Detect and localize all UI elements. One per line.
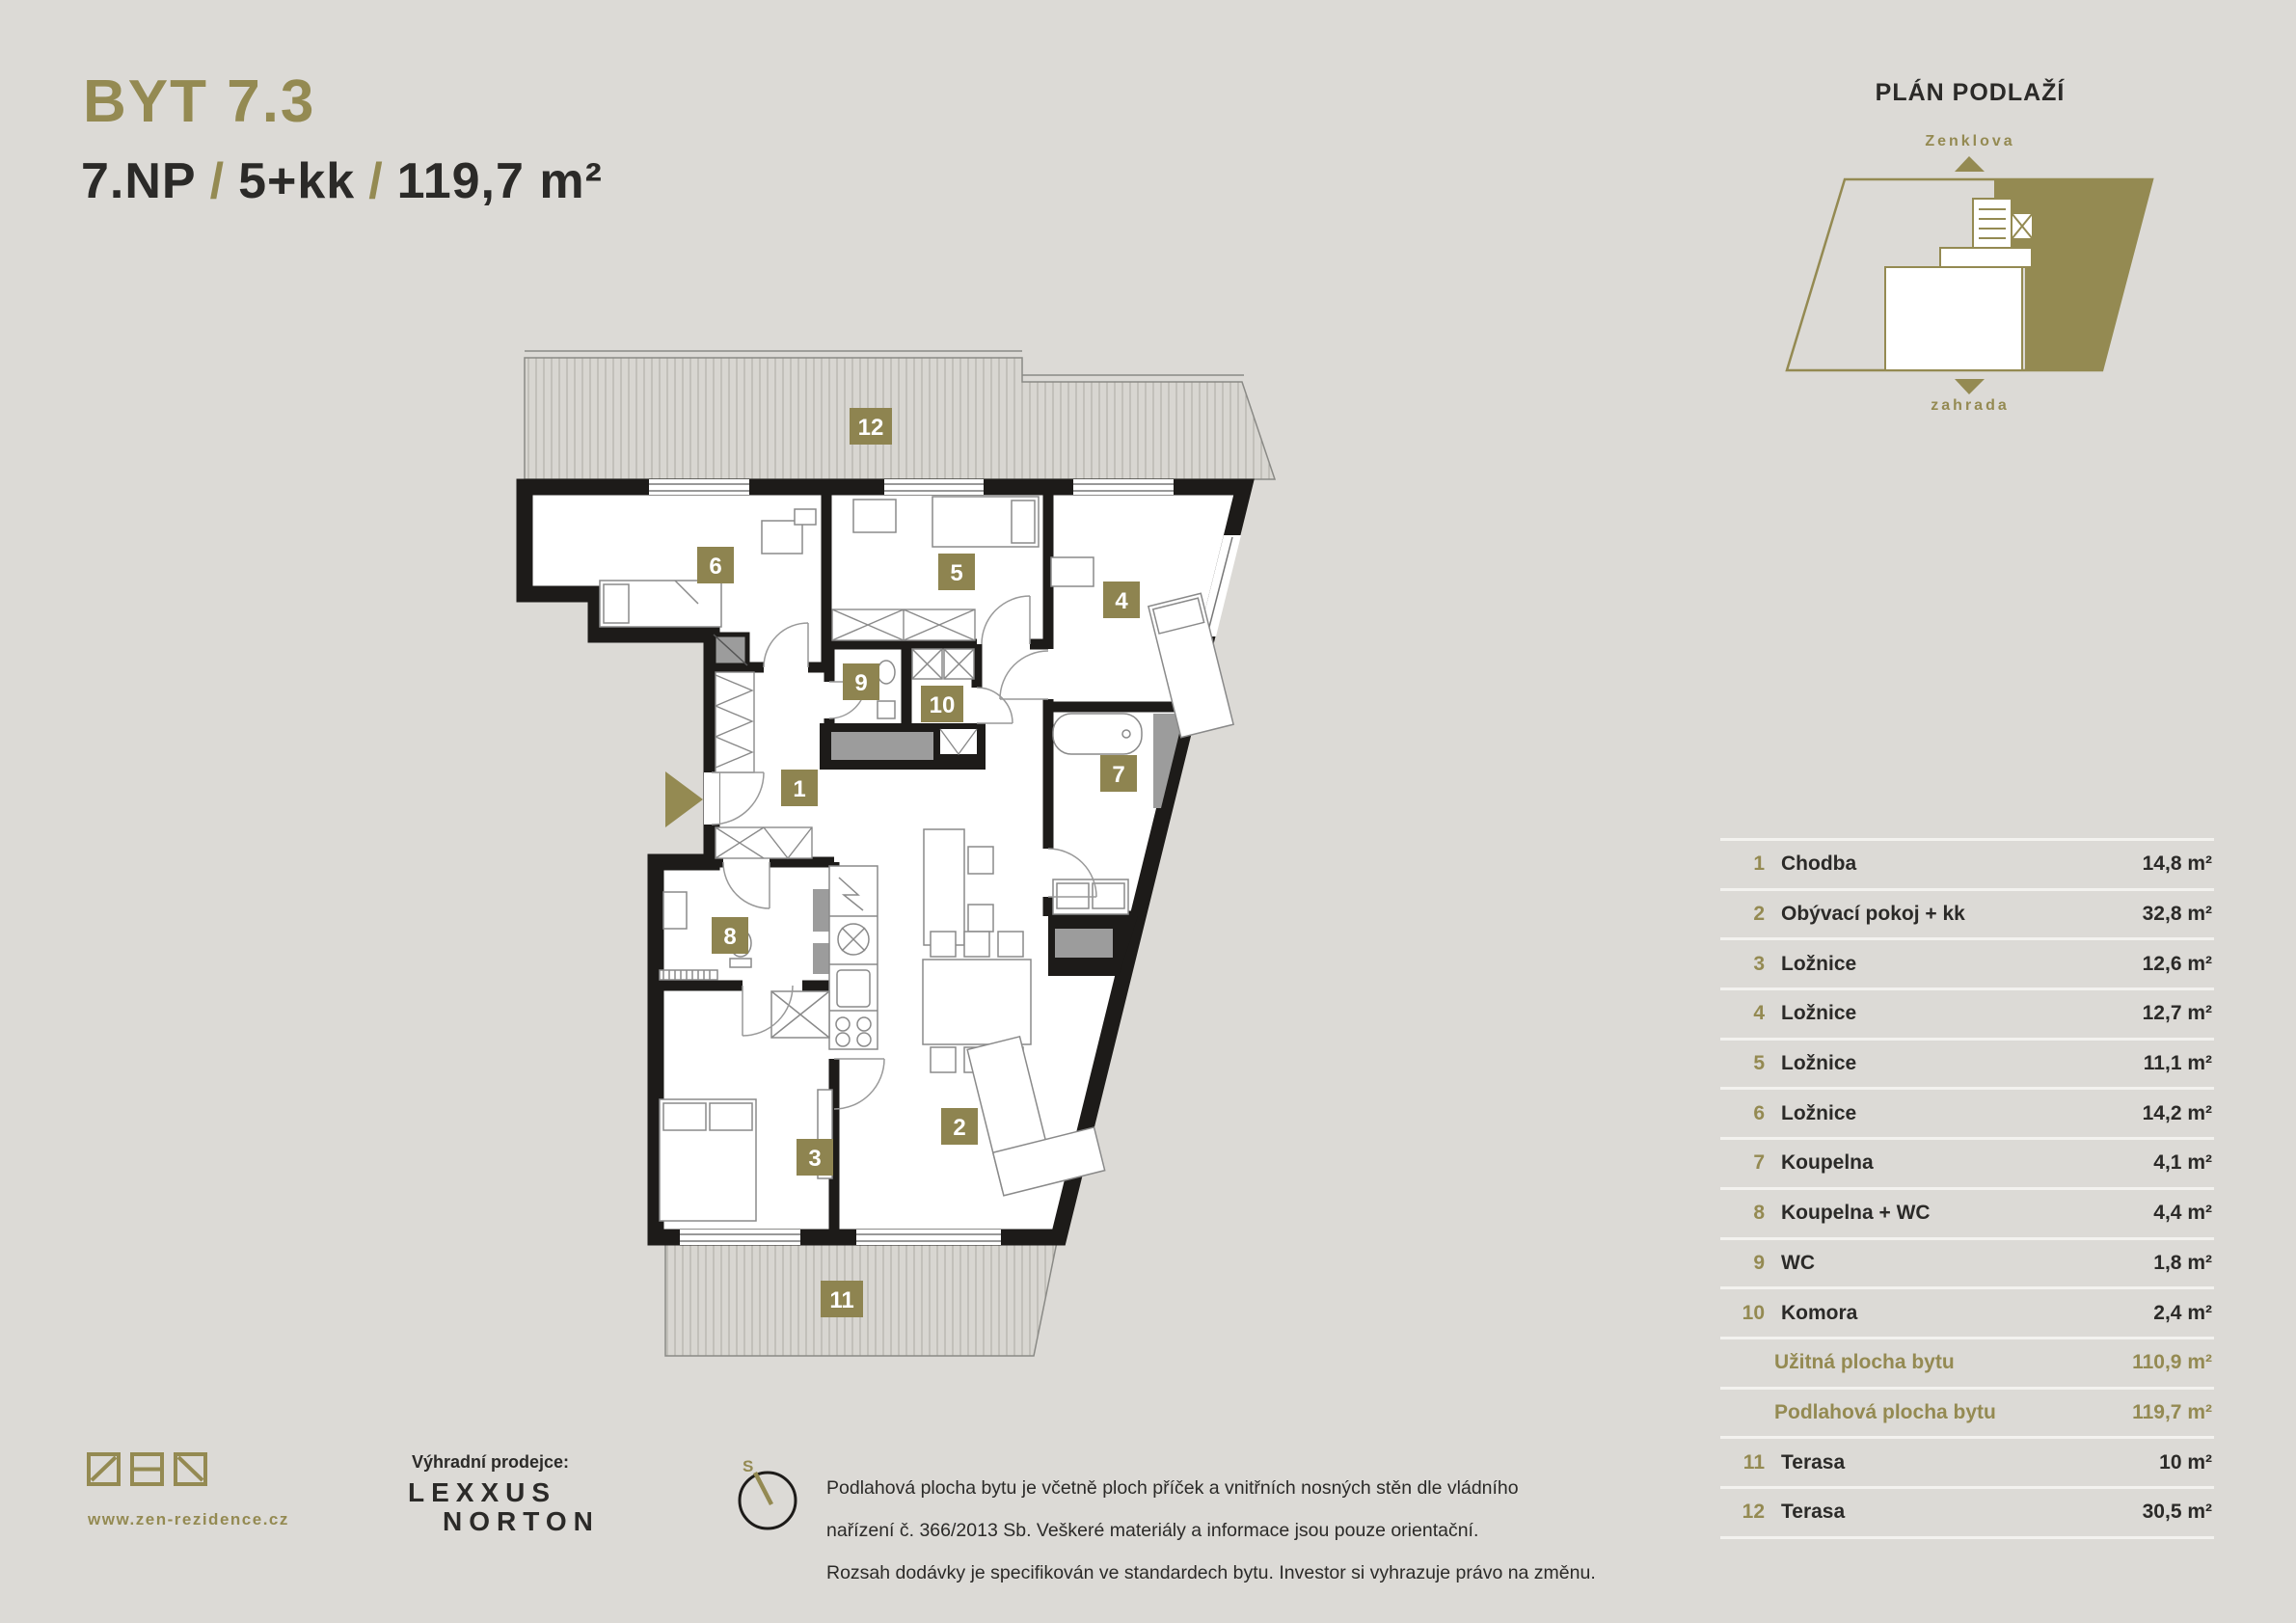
room-name: Podlahová plocha bytu: [1765, 1401, 2132, 1424]
svg-text:2: 2: [953, 1115, 965, 1141]
room-name: Terasa: [1765, 1451, 2159, 1474]
room-area: 10 m²: [2159, 1451, 2214, 1474]
lexxus-logo-line2: NORTON: [443, 1506, 600, 1537]
table-row: 4 Ložnice 12,7 m²: [1720, 987, 2214, 1038]
room-name: Koupelna + WC: [1765, 1202, 2153, 1225]
room-area-table: 1 Chodba 14,8 m² 2 Obývací pokoj + kk 32…: [1720, 838, 2214, 1539]
room-number: 4: [1720, 1002, 1765, 1025]
room-name: Koupelna: [1765, 1151, 2153, 1175]
svg-text:5: 5: [950, 560, 962, 586]
room-badge-1: 1: [781, 770, 818, 806]
svg-text:9: 9: [854, 670, 867, 696]
room-number: 12: [1720, 1501, 1765, 1524]
room-badge-5: 5: [938, 554, 975, 590]
room-area: 110,9 m²: [2132, 1351, 2214, 1374]
page-title: BYT 7.3: [83, 68, 315, 136]
room-area: 12,6 m²: [2143, 953, 2214, 976]
garden-label: zahrada: [1777, 397, 2163, 415]
compass-south-label: S: [743, 1457, 753, 1475]
room-number: 8: [1720, 1202, 1765, 1225]
entrance-arrow-icon: [665, 771, 703, 827]
disclaimer-line: nařízení č. 366/2013 Sb. Veškeré materiá…: [826, 1509, 1694, 1552]
spec-layout: 5+kk: [238, 153, 355, 209]
table-row: 6 Ložnice 14,2 m²: [1720, 1087, 2214, 1137]
room-badge-2: 2: [941, 1108, 978, 1145]
table-row: 7 Koupelna 4,1 m²: [1720, 1137, 2214, 1187]
disclaimer-line: Podlahová plocha bytu je včetně ploch př…: [826, 1467, 1694, 1509]
svg-text:6: 6: [709, 554, 721, 580]
spec-separator: /: [355, 153, 396, 209]
north-arrow-icon: [1955, 156, 1985, 172]
building-footprint: [1885, 199, 2033, 370]
room-name: Ložnice: [1765, 1052, 2144, 1075]
room-number: 6: [1720, 1102, 1765, 1125]
floorplan-sheet: BYT 7.3 7.NP/5+kk/119,7 m² PLÁN PODLAŽÍ …: [0, 0, 2296, 1623]
room-badge-3: 3: [797, 1139, 833, 1176]
room-name: Komora: [1765, 1302, 2153, 1325]
compass-icon: S: [728, 1447, 820, 1543]
table-row: 12 Terasa 30,5 m²: [1720, 1486, 2214, 1539]
apartment-spec: 7.NP/5+kk/119,7 m²: [81, 152, 603, 210]
room-area: 2,4 m²: [2153, 1302, 2214, 1325]
room-number: 9: [1720, 1252, 1765, 1275]
room-number: 7: [1720, 1151, 1765, 1175]
floorplan-drawing: 126549101782311: [501, 338, 1302, 1389]
spec-separator: /: [197, 153, 238, 209]
room-number: 11: [1720, 1451, 1765, 1474]
disclaimer-line: Rozsah dodávky je specifikován ve standa…: [826, 1552, 1694, 1594]
room-area: 14,2 m²: [2143, 1102, 2214, 1125]
room-area: 12,7 m²: [2143, 1002, 2214, 1025]
room-badge-9: 9: [843, 663, 879, 700]
table-row: 9 WC 1,8 m²: [1720, 1237, 2214, 1287]
room-number: 10: [1720, 1302, 1765, 1325]
room-name: Ložnice: [1765, 1102, 2143, 1125]
south-arrow-icon: [1955, 379, 1985, 394]
seller-label: Výhradní prodejce:: [412, 1452, 569, 1473]
room-badge-4: 4: [1103, 582, 1140, 618]
room-area: 4,1 m²: [2153, 1151, 2214, 1175]
room-area: 14,8 m²: [2143, 852, 2214, 876]
table-row: Užitná plocha bytu 110,9 m²: [1720, 1337, 2214, 1387]
table-row: 2 Obývací pokoj + kk 32,8 m²: [1720, 888, 2214, 938]
spec-area: 119,7 m²: [397, 153, 603, 209]
table-row: 3 Ložnice 12,6 m²: [1720, 937, 2214, 987]
room-area: 119,7 m²: [2132, 1401, 2214, 1424]
table-row: Podlahová plocha bytu 119,7 m²: [1720, 1387, 2214, 1437]
svg-text:11: 11: [829, 1287, 853, 1313]
room-name: Terasa: [1765, 1501, 2143, 1524]
svg-text:3: 3: [808, 1146, 821, 1172]
table-row: 1 Chodba 14,8 m²: [1720, 838, 2214, 888]
table-row: 10 Komora 2,4 m²: [1720, 1286, 2214, 1337]
room-name: Obývací pokoj + kk: [1765, 903, 2143, 926]
room-area: 32,8 m²: [2143, 903, 2214, 926]
room-name: Ložnice: [1765, 1002, 2143, 1025]
table-row: 11 Terasa 10 m²: [1720, 1436, 2214, 1486]
room-badge-10: 10: [921, 686, 963, 722]
room-area: 11,1 m²: [2144, 1052, 2214, 1075]
room-area: 1,8 m²: [2153, 1252, 2214, 1275]
room-number: 5: [1720, 1052, 1765, 1075]
zen-logo-icon: [87, 1452, 217, 1493]
svg-text:8: 8: [723, 924, 736, 950]
siteplan-title: PLÁN PODLAŽÍ: [1777, 79, 2163, 107]
room-name: WC: [1765, 1252, 2153, 1275]
room-name: Užitná plocha bytu: [1765, 1351, 2132, 1374]
room-badge-6: 6: [697, 547, 734, 583]
spec-floor: 7.NP: [81, 153, 197, 209]
table-row: 8 Koupelna + WC 4,4 m²: [1720, 1187, 2214, 1237]
room-name: Ložnice: [1765, 953, 2143, 976]
room-badge-7: 7: [1100, 755, 1137, 792]
room-badge-11: 11: [821, 1281, 863, 1317]
room-area: 4,4 m²: [2153, 1202, 2214, 1225]
svg-text:4: 4: [1115, 588, 1128, 614]
disclaimer-text: Podlahová plocha bytu je včetně ploch př…: [826, 1467, 1694, 1594]
room-area: 30,5 m²: [2143, 1501, 2214, 1524]
street-label: Zenklova: [1777, 133, 2163, 150]
room-number: 3: [1720, 953, 1765, 976]
room-number: 2: [1720, 903, 1765, 926]
siteplan-map: [1774, 149, 2170, 400]
room-name: Chodba: [1765, 852, 2143, 876]
room-badge-8: 8: [712, 917, 748, 954]
room-badge-12: 12: [850, 408, 892, 445]
room-number: 1: [1720, 852, 1765, 876]
svg-text:1: 1: [793, 776, 805, 802]
website-link[interactable]: www.zen-rezidence.cz: [88, 1510, 289, 1529]
terrace-12: [525, 351, 1275, 479]
svg-text:10: 10: [930, 692, 956, 718]
svg-text:7: 7: [1112, 762, 1124, 788]
table-row: 5 Ložnice 11,1 m²: [1720, 1038, 2214, 1088]
lexxus-logo-line1: LEXXUS: [408, 1477, 556, 1508]
svg-text:12: 12: [858, 415, 884, 441]
